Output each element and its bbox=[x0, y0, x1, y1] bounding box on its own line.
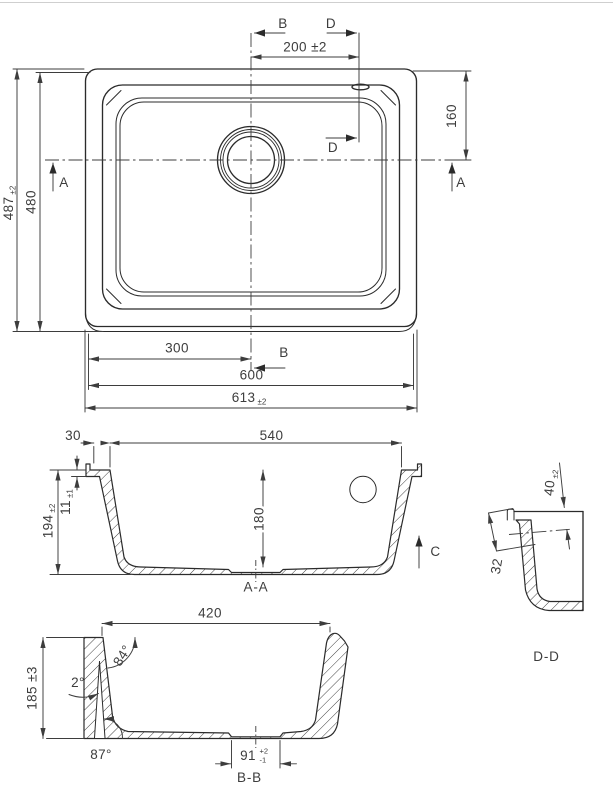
angle-2-label: 2° bbox=[71, 675, 85, 690]
dim-185-label: 185 ±3 bbox=[25, 666, 40, 710]
section-dd-rim-lip bbox=[507, 509, 514, 520]
dim-91-tol-plus: +2 bbox=[260, 747, 269, 756]
dim-180-label: 180 bbox=[252, 507, 267, 531]
section-bb-title: B-B bbox=[237, 770, 262, 785]
dim-30-arrowhead bbox=[101, 441, 111, 446]
angle-84-label: 84° bbox=[110, 642, 134, 668]
dim-480-label: 480 bbox=[24, 190, 39, 214]
dim-487-label: 487±2 bbox=[1, 185, 18, 220]
section-aa-view: 30 540 11±1 194±2 180 C A-A bbox=[41, 428, 441, 595]
overflow-hole-section bbox=[350, 476, 376, 502]
dim-line-32 bbox=[489, 513, 497, 551]
dim-30-label: 30 bbox=[65, 428, 81, 443]
dim-420-label: 420 bbox=[198, 606, 222, 621]
dim-91-label: 91 bbox=[240, 748, 256, 763]
section-aa-title: A-A bbox=[244, 580, 269, 595]
section-marker-a-left-label: A bbox=[59, 175, 68, 190]
dim-91-tol-minus: -1 bbox=[260, 756, 267, 765]
dim-540-arrowhead bbox=[110, 441, 120, 446]
dim-11-label: 11±1 bbox=[58, 489, 75, 515]
section-marker-c-label: C bbox=[430, 544, 440, 559]
angle-87-label: 87° bbox=[90, 747, 112, 762]
dim-200-label: 200 ±2 bbox=[283, 40, 327, 55]
dim-40-arrow-bottom bbox=[567, 530, 570, 550]
section-dd-view: 40±2 32 D-D bbox=[488, 463, 583, 664]
drawing-page: 200 ±2 B D D 160 A A 487±2 480 300 bbox=[0, 0, 613, 800]
section-dd-title: D-D bbox=[533, 649, 559, 664]
section-marker-d-top-label: D bbox=[326, 16, 336, 31]
section-marker-a-right-label: A bbox=[456, 175, 465, 190]
section-bb-view: 420 185 ±3 84° 2° 87° 91 +2 -1 B-B bbox=[25, 606, 349, 786]
dim-32-label: 32 bbox=[488, 557, 506, 575]
dim-40-label: 40±2 bbox=[541, 468, 560, 497]
section-marker-d-mid-label: D bbox=[328, 140, 338, 155]
section-dd-material bbox=[516, 520, 583, 611]
section-marker-b-top-label: B bbox=[278, 16, 287, 31]
section-marker-b-bottom-label: B bbox=[279, 345, 288, 360]
section-aa-extension-lines bbox=[50, 447, 402, 575]
section-dd-centerline bbox=[509, 529, 573, 535]
dim-160-extension-lines bbox=[413, 71, 471, 160]
dim-600-label: 600 bbox=[240, 368, 264, 383]
dim-540-label: 540 bbox=[260, 428, 284, 443]
dim-40-arrow-top bbox=[560, 463, 565, 508]
technical-drawing-canvas: 200 ±2 B D D 160 A A 487±2 480 300 bbox=[0, 0, 613, 800]
dim-300-label: 300 bbox=[165, 341, 189, 356]
dim-194-label: 194±2 bbox=[41, 503, 58, 538]
dim-613-label: 613±2 bbox=[232, 390, 267, 407]
dim-160-label: 160 bbox=[444, 104, 459, 128]
plan-view: 200 ±2 B D D 160 A A 487±2 480 300 bbox=[1, 16, 471, 412]
